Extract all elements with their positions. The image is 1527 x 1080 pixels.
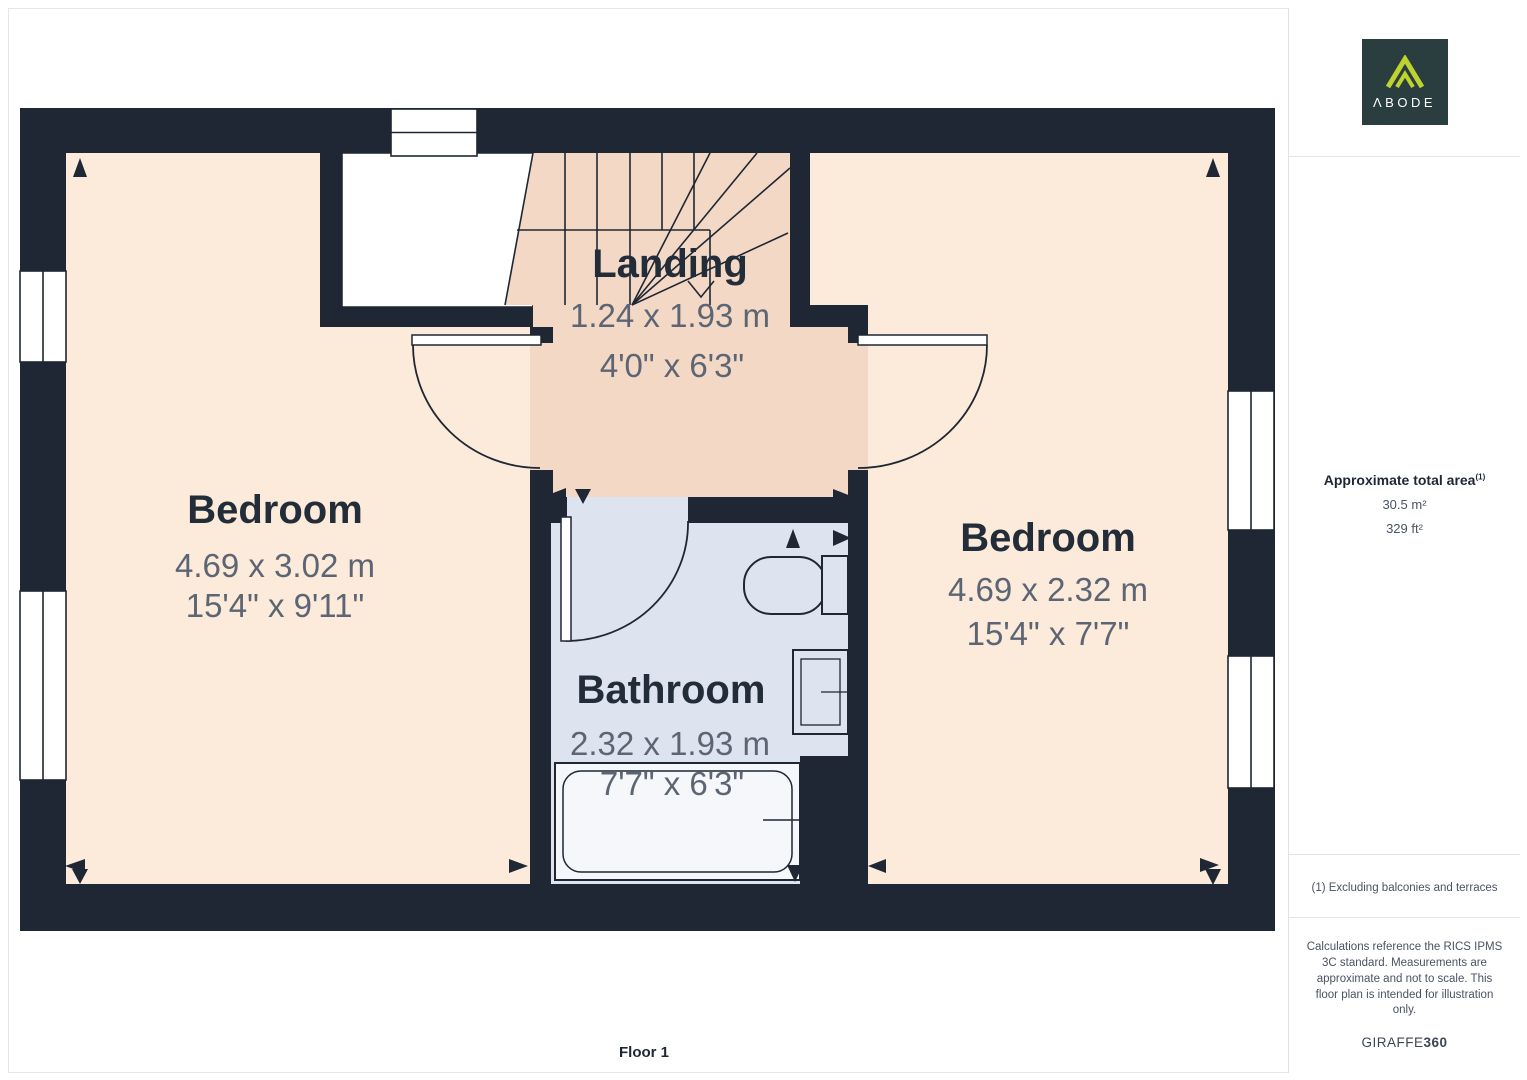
- room-name: Bedroom: [187, 488, 363, 532]
- room-dim-imperial: 15'4" x 7'7": [967, 615, 1130, 652]
- room-name: Bedroom: [960, 516, 1136, 560]
- provider-suffix: 360: [1423, 1035, 1447, 1050]
- door-leaf-bedroom-right: [858, 335, 987, 345]
- area-heading-text: Approximate total area: [1324, 472, 1476, 488]
- room-dim-metric: 4.69 x 3.02 m: [175, 547, 375, 584]
- stair-void: [342, 153, 533, 307]
- room-name: Bathroom: [577, 668, 766, 712]
- footnote-section: (1) Excluding balconies and terraces: [1289, 859, 1520, 918]
- abode-chevron-icon: [1383, 55, 1427, 89]
- door-gap-bathroom: [567, 497, 688, 523]
- toilet-icon: [744, 557, 826, 614]
- room-dim-metric: 2.32 x 1.93 m: [570, 725, 770, 762]
- floor-label: Floor 1: [0, 1044, 1288, 1061]
- room-dim-metric: 4.69 x 2.32 m: [948, 571, 1148, 608]
- room-dim-imperial: 4'0" x 6'3": [600, 347, 744, 384]
- room-name: Landing: [592, 242, 748, 286]
- door-leaf-bathroom: [561, 517, 571, 641]
- floor-plan: Bedroom 4.69 x 3.02 m 15'4" x 9'11" Land…: [0, 0, 1288, 1080]
- provider-wordmark: GIRAFFE360: [1361, 1035, 1447, 1050]
- area-heading: Approximate total area(1): [1324, 472, 1486, 488]
- area-heading-superscript: (1): [1475, 472, 1485, 481]
- room-dim-imperial: 7'7" x 6'3": [600, 765, 744, 802]
- door-leaf-bedroom-left: [412, 335, 541, 345]
- room-dim-imperial: 15'4" x 9'11": [186, 587, 365, 624]
- area-metric: 30.5 m²: [1382, 497, 1426, 512]
- door-gap-left: [530, 343, 553, 470]
- info-sidebar: ΛBODE Approximate total area(1) 30.5 m² …: [1288, 8, 1520, 1073]
- disclaimer-text: Calculations reference the RICS IPMS 3C …: [1306, 940, 1504, 1019]
- logo-section: ΛBODE: [1289, 8, 1520, 157]
- area-imperial: 329 ft²: [1386, 521, 1423, 536]
- room-dim-metric: 1.24 x 1.93 m: [570, 297, 770, 334]
- abode-logo: ΛBODE: [1362, 39, 1448, 125]
- door-gap-right: [848, 343, 868, 470]
- footnote-text: (1) Excluding balconies and terraces: [1311, 882, 1497, 894]
- provider-name: GIRAFFE: [1361, 1035, 1423, 1050]
- disclaimer-section: Calculations reference the RICS IPMS 3C …: [1289, 918, 1520, 1073]
- total-area-section: Approximate total area(1) 30.5 m² 329 ft…: [1289, 153, 1520, 855]
- logo-wordmark: ΛBODE: [1373, 95, 1436, 110]
